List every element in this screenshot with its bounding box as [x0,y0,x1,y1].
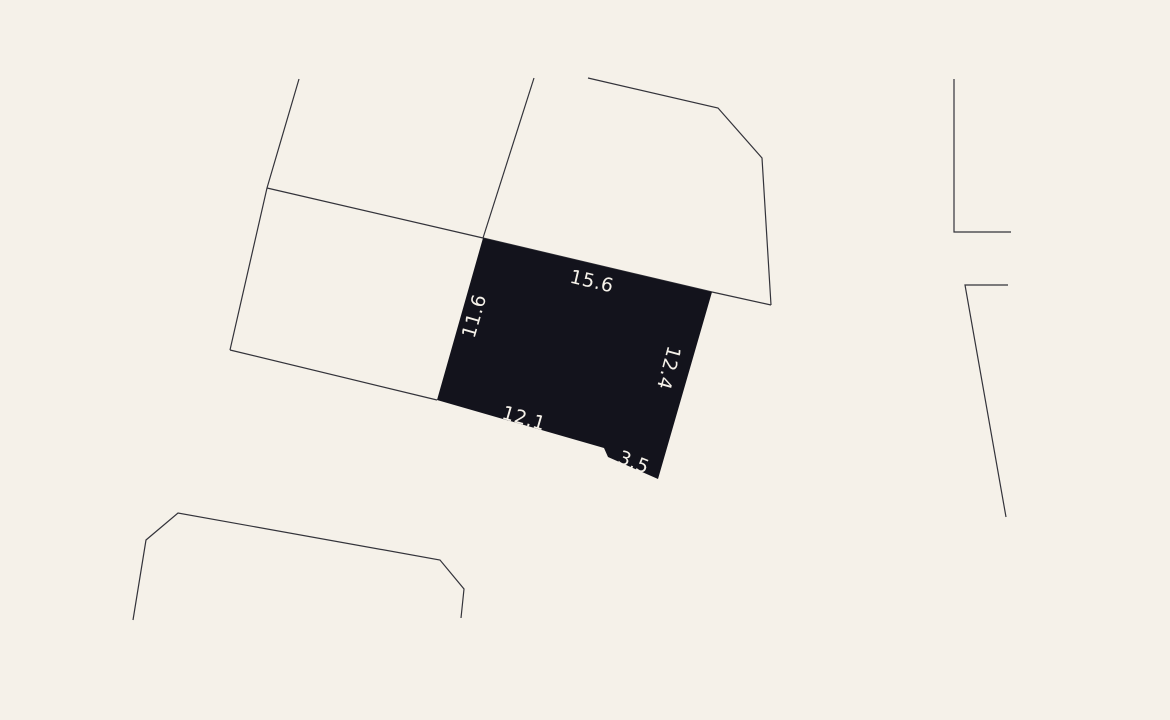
map-canvas[interactable]: 15.6 11.6 12.4 12.1 3.5 [0,0,1170,720]
map-viewport[interactable]: 15.6 11.6 12.4 12.1 3.5 [0,0,1170,720]
